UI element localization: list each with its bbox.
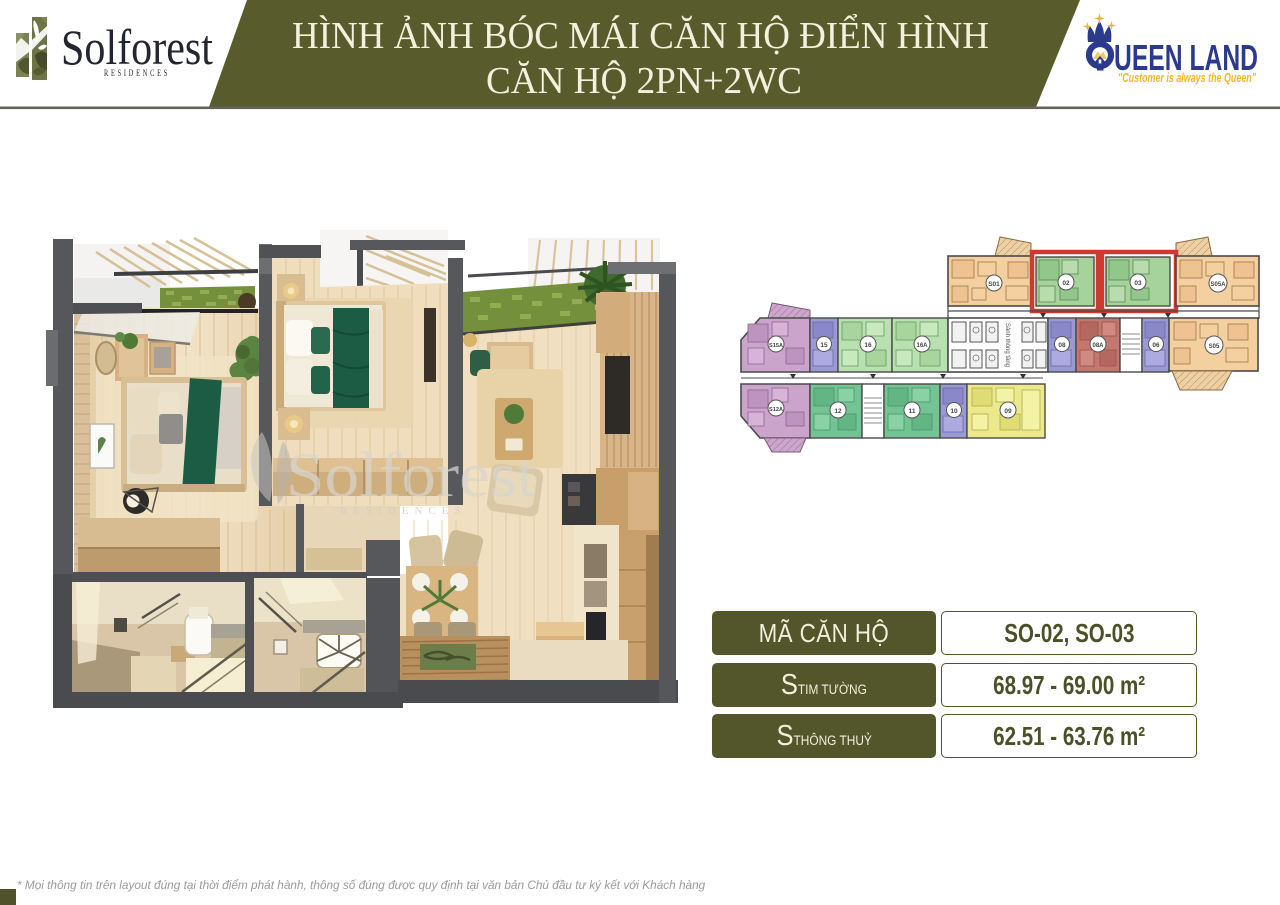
svg-text:"Customer is always the Queen": "Customer is always the Queen"	[1118, 71, 1257, 85]
svg-text:15: 15	[820, 342, 828, 349]
svg-text:S01: S01	[988, 281, 1000, 288]
svg-text:16A: 16A	[916, 343, 928, 349]
svg-text:S05: S05	[1209, 344, 1220, 350]
svg-text:S05A: S05A	[1210, 282, 1226, 288]
svg-text:RESIDENCES: RESIDENCES	[340, 505, 467, 517]
svg-text:11: 11	[909, 408, 916, 415]
svg-text:RESIDENCES: RESIDENCES	[104, 68, 170, 78]
svg-text:S12A: S12A	[769, 407, 783, 413]
svg-text:10: 10	[950, 408, 958, 415]
svg-text:06: 06	[1152, 342, 1160, 349]
svg-text:Solforest: Solforest	[61, 19, 213, 75]
svg-text:12: 12	[834, 408, 842, 415]
svg-text:03: 03	[1134, 280, 1142, 287]
svg-text:Solforest: Solforest	[286, 439, 536, 510]
svg-text:09: 09	[1004, 408, 1012, 415]
svg-text:CĂN HỘ 2PN+2WC: CĂN HỘ 2PN+2WC	[486, 60, 802, 102]
svg-text:08: 08	[1058, 342, 1066, 349]
svg-text:08A: 08A	[1092, 343, 1104, 349]
svg-text:02: 02	[1062, 280, 1070, 287]
svg-text:S15A: S15A	[769, 343, 783, 349]
svg-text:16: 16	[864, 342, 872, 349]
svg-text:HÌNH ẢNH BÓC MÁI CĂN HỘ ĐIỂN H: HÌNH ẢNH BÓC MÁI CĂN HỘ ĐIỂN HÌNH	[292, 14, 989, 57]
svg-text:Sảnh thông tầng: Sảnh thông tầng	[1004, 323, 1010, 367]
